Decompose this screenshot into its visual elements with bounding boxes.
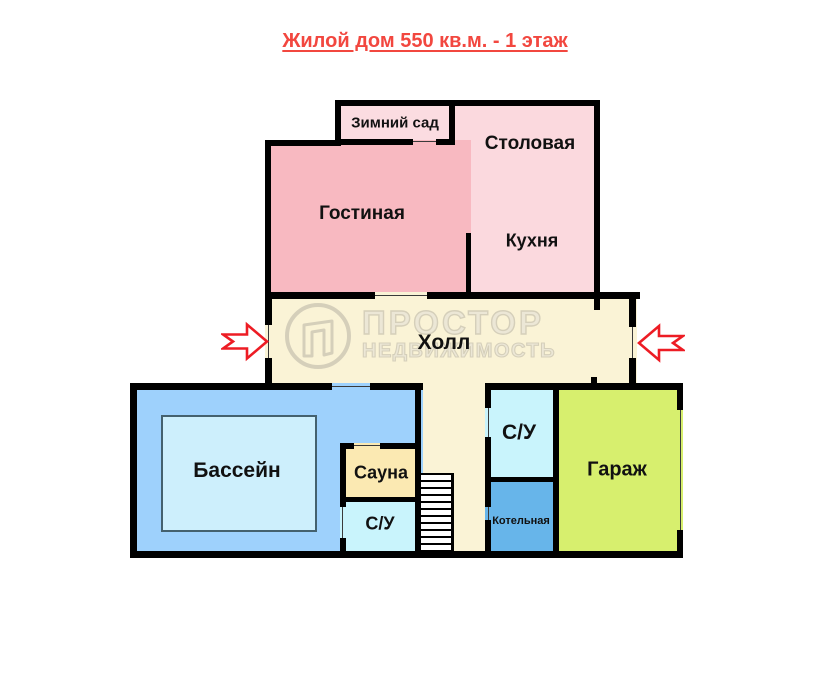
page-title: Жилой дом 550 кв.м. - 1 этаж — [33, 30, 817, 53]
wall-segment — [265, 292, 375, 299]
wall-segment — [553, 383, 559, 551]
room-boiler — [485, 477, 559, 551]
door-opening — [413, 141, 436, 142]
wall-segment — [466, 233, 471, 298]
door-opening — [342, 507, 343, 538]
wall-segment — [594, 100, 600, 310]
label-winter-garden: Зимний сад — [351, 115, 439, 132]
wall-segment — [427, 292, 640, 299]
entrance-arrow-left-icon — [221, 321, 269, 362]
door-opening — [375, 295, 427, 296]
wall-segment — [485, 437, 491, 507]
label-bathroom-main: С/У — [502, 421, 536, 445]
wall-segment — [485, 383, 491, 408]
door-opening — [354, 445, 380, 446]
wall-segment — [449, 100, 455, 145]
wall-segment — [130, 551, 683, 558]
wall-segment — [335, 100, 600, 106]
prostor-logo-icon — [282, 300, 354, 372]
floor-plan-page: Жилой дом 550 кв.м. - 1 этаж ПРОСТОР НЕД… — [0, 0, 817, 685]
wall-segment — [485, 383, 683, 390]
label-kitchen: Кухня — [506, 231, 559, 252]
stairs — [421, 473, 454, 551]
label-living: Гостиная — [319, 203, 405, 225]
label-bathroom-pool: С/У — [365, 514, 394, 535]
door-opening-entrance-right — [632, 327, 633, 358]
entrance-arrow-right-icon — [637, 323, 685, 363]
wall-segment — [629, 292, 636, 327]
door-opening — [332, 386, 370, 387]
wall-segment — [130, 383, 137, 558]
wall-segment — [130, 383, 332, 390]
label-hall: Холл — [418, 331, 471, 355]
wall-segment — [591, 377, 597, 385]
garage-door-opening — [680, 410, 681, 530]
wall-segment — [485, 477, 559, 482]
wall-segment — [335, 139, 413, 145]
wall-segment — [677, 383, 683, 410]
door-opening — [488, 408, 489, 437]
wall-segment — [340, 538, 346, 551]
door-opening — [488, 507, 489, 520]
wall-segment — [335, 100, 341, 145]
label-dining: Столовая — [485, 133, 575, 155]
label-pool: Бассейн — [193, 459, 280, 483]
wall-segment — [265, 140, 271, 298]
wall-segment — [380, 443, 421, 449]
wall-segment — [485, 520, 491, 551]
label-sauna: Сауна — [354, 463, 408, 484]
wall-segment — [265, 140, 341, 146]
label-garage: Гараж — [587, 459, 647, 482]
label-boiler: Котельная — [492, 515, 550, 527]
wall-segment — [340, 497, 421, 502]
room-dining-kitchen — [450, 100, 600, 298]
